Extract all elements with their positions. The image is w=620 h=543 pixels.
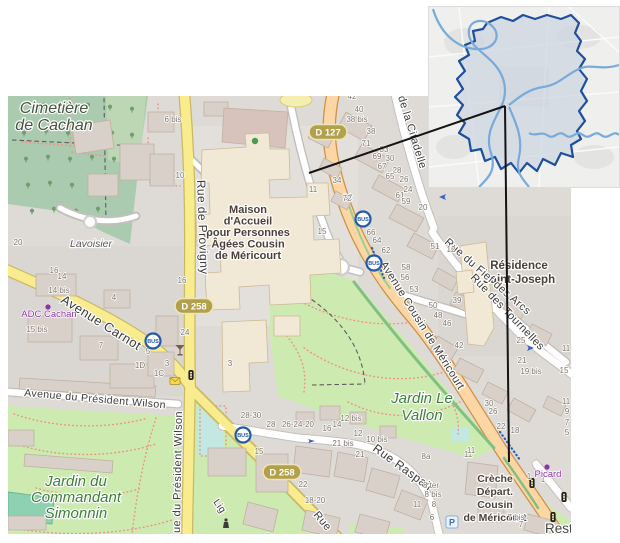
- house-number: 28: [267, 420, 276, 429]
- house-number: 30: [386, 154, 395, 163]
- house-number: 24: [404, 185, 413, 194]
- maison-accueil-label: d'Accueil: [224, 216, 272, 228]
- house-number: 22: [299, 480, 308, 489]
- house-number: 5: [565, 428, 570, 437]
- house-number: 21 bis: [332, 439, 353, 448]
- route-shield-text: D 127: [315, 128, 340, 139]
- house-number: 38: [367, 127, 376, 136]
- parking-letter: P: [449, 518, 455, 528]
- house-number: 46: [443, 319, 452, 328]
- house-number: 11: [309, 185, 318, 194]
- house-number: 50: [429, 301, 438, 310]
- house-number: 21: [518, 356, 527, 365]
- route-shield-text: D 258: [269, 468, 294, 479]
- house-number: 3: [228, 359, 233, 368]
- cemetery-label: Cimetière: [20, 100, 89, 117]
- house-number: 39: [453, 296, 462, 305]
- house-number: 10: [176, 171, 185, 180]
- house-number: 72: [343, 194, 352, 203]
- house-number: 14 bis: [48, 286, 69, 295]
- house-number: 42: [348, 96, 357, 101]
- house-number: 8 bis: [425, 490, 442, 499]
- house-number: 15: [560, 366, 569, 375]
- house-number: 22: [497, 422, 506, 431]
- house-number: 38 bis: [346, 115, 367, 124]
- route-shield-text: D 258: [181, 302, 206, 313]
- house-number: 26-24-20: [282, 420, 315, 429]
- house-number: 24: [181, 328, 190, 337]
- maison-accueil-label: pour Personnes: [206, 227, 290, 239]
- house-number: 10 bis: [366, 435, 387, 444]
- roundabout: [84, 216, 96, 228]
- house-number: 3: [165, 359, 170, 368]
- house-number: 20: [14, 238, 23, 247]
- jardin-simonnin-label: Commandant: [31, 489, 122, 506]
- maison-accueil-label: Maison: [229, 204, 267, 216]
- house-number: 1D: [135, 361, 145, 370]
- street-label: ue du Président Wilson: [171, 411, 185, 533]
- creche-label: Crèche: [477, 473, 513, 485]
- screenshot-canvas: P Cimetièrede CachanLavoisierMaisond'Acc…: [0, 0, 620, 543]
- house-number: 11: [413, 500, 422, 509]
- bus-stop-label: BUS: [368, 261, 380, 267]
- house-number: 59: [402, 197, 411, 206]
- bus-stop-icon: BUS: [236, 428, 251, 443]
- maison-accueil-label: de Méricourt: [215, 250, 281, 262]
- house-number: 12: [354, 429, 363, 438]
- house-number: 7: [519, 520, 524, 529]
- jardin-vallon-label: Jardin Le: [390, 390, 453, 407]
- house-number: 8 ter: [423, 481, 439, 490]
- house-number: 11: [467, 446, 476, 455]
- house-number: 26: [489, 407, 498, 416]
- traffic-light-icon: [188, 370, 193, 380]
- maison-accueil-label: Âgées Cousin: [211, 238, 285, 251]
- jardin-vallon-label: Vallon: [401, 407, 442, 424]
- recycling-icon: [252, 138, 258, 144]
- house-number: 11: [562, 344, 571, 353]
- house-number: 56: [401, 273, 410, 282]
- house-number: 58: [402, 263, 411, 272]
- house-number: 65: [386, 172, 395, 181]
- junction-area: [280, 96, 312, 107]
- house-number: 4: [112, 293, 117, 302]
- house-number: 26: [400, 175, 409, 184]
- house-number: 51: [431, 242, 440, 251]
- house-number: 16: [178, 276, 187, 285]
- house-number: 1C: [154, 369, 164, 378]
- traffic-light-icon: [561, 492, 566, 502]
- bus-stop-icon: BUS: [367, 256, 382, 271]
- house-number: 7: [565, 418, 570, 427]
- creche-label: Départ.: [477, 486, 513, 498]
- house-number: 12: [447, 245, 456, 254]
- jardin-simonnin-label: Simonnin: [45, 505, 108, 522]
- house-number: 19 bis: [520, 367, 541, 376]
- house-number: 67: [378, 162, 387, 171]
- house-number: 14: [58, 272, 67, 281]
- bus-stop-label: BUS: [147, 339, 159, 345]
- house-number: 1: [527, 472, 532, 481]
- jardin-simonnin-label: Jardin du: [44, 473, 107, 490]
- house-number: 15: [255, 447, 264, 456]
- creche-label: Cousin: [477, 499, 513, 511]
- house-number: 69: [373, 152, 382, 161]
- house-number: 15 bis: [26, 325, 47, 334]
- lavoisier-label: Lavoisier: [70, 238, 113, 250]
- house-number: 71: [362, 139, 371, 148]
- house-number: 18-20: [305, 496, 326, 505]
- playground-area-2: [451, 428, 469, 441]
- bus-stop-label: BUS: [357, 217, 369, 223]
- bus-stop-icon: BUS: [146, 334, 161, 349]
- house-number: 20: [419, 203, 428, 212]
- restaurant-label: Rest: [545, 521, 571, 534]
- cemetery-label: de Cachan: [15, 117, 92, 134]
- house-number: 8a: [422, 452, 431, 461]
- house-number: 11: [562, 397, 571, 406]
- house-number: 21: [356, 450, 365, 459]
- inset-overview-map[interactable]: [428, 6, 620, 188]
- post-office-icon: [170, 378, 180, 385]
- bus-stop-label: BUS: [237, 433, 249, 439]
- house-number: 15: [318, 227, 327, 236]
- house-number: 42: [455, 341, 464, 350]
- house-number: 8: [432, 500, 437, 509]
- poi-label: Picard: [535, 469, 562, 480]
- house-number: 7: [99, 341, 104, 350]
- poi-label: ADC Cachan: [21, 309, 76, 320]
- house-number: 25: [517, 336, 526, 345]
- bus-stop-icon: BUS: [356, 212, 371, 227]
- house-number: 12 bis: [340, 414, 361, 423]
- house-number: 16: [323, 424, 332, 433]
- house-number: 9: [565, 407, 570, 416]
- house-number: 53: [410, 285, 419, 294]
- house-number: 6: [430, 513, 435, 522]
- house-number: 34: [333, 176, 342, 185]
- house-number: 28-30: [241, 411, 262, 420]
- house-number: 18: [511, 426, 520, 435]
- parking-icon: P: [446, 516, 458, 528]
- house-number: 62: [382, 246, 391, 255]
- house-number: 6 bis: [165, 115, 182, 124]
- inset-map-canvas: [429, 7, 619, 187]
- house-number: 64: [373, 236, 382, 245]
- residence-label: Résidence: [490, 260, 548, 272]
- house-number: 40: [355, 105, 364, 114]
